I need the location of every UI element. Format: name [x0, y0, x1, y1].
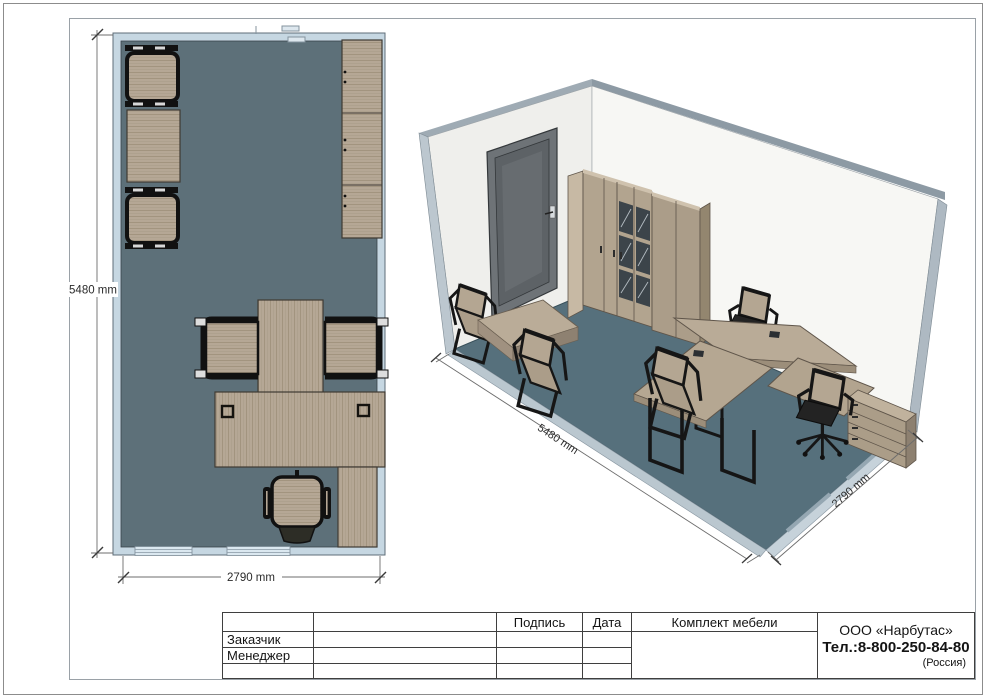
title-block-cell: [223, 613, 314, 632]
furniture-set-header: Комплект мебели: [632, 613, 818, 632]
plan-dim-height-label: 5480 mm: [69, 285, 117, 297]
title-block-cell: [223, 664, 314, 679]
customer-signature-cell: [497, 632, 583, 648]
plan-meeting-table: [258, 300, 323, 393]
manager-value-cell: [314, 648, 497, 664]
plan-armchair-2: [125, 187, 178, 249]
plan-dim-width: 2790 mm: [118, 556, 386, 584]
customer-date-cell: [583, 632, 632, 648]
title-block-cell: [583, 664, 632, 679]
sheet: 5480 mm 2790 mm: [0, 0, 988, 700]
company-country: (Россия): [822, 657, 970, 669]
plan-desk-return: [338, 467, 377, 547]
title-block-cell: [497, 664, 583, 679]
manager-date-cell: [583, 648, 632, 664]
plan-dim-height: 5480 mm: [68, 29, 118, 558]
manager-row-label: Менеджер: [223, 648, 314, 664]
plan-meeting-chair-left: [195, 318, 258, 378]
plan-meeting-chair-right: [325, 318, 388, 378]
signature-header: Подпись: [497, 613, 583, 632]
company-phone: Тел.:8-800-250-84-80: [822, 639, 970, 656]
customer-row-label: Заказчик: [223, 632, 314, 648]
floor-plan-view: 5480 mm 2790 mm: [68, 26, 388, 584]
drawing-canvas: 5480 mm 2790 mm: [0, 0, 988, 700]
iso-door: [487, 128, 557, 319]
customer-value-cell: [314, 632, 497, 648]
company-info: ООО «Нарбутас» Тел.:8-800-250-84-80 (Рос…: [818, 613, 975, 679]
plan-coffee-table: [127, 110, 180, 182]
plan-armchair-1: [125, 45, 178, 107]
plan-cabinet: [342, 40, 382, 238]
plan-desk: [215, 392, 385, 467]
furniture-set-cell: [632, 632, 818, 679]
date-header: Дата: [583, 613, 632, 632]
company-name: ООО «Нарбутас»: [822, 622, 970, 638]
room-3d-view: 5480 mm 2790 mm: [419, 79, 947, 565]
title-block: Подпись Дата Комплект мебели ООО «Нарбут…: [222, 612, 975, 679]
plan-dim-width-label: 2790 mm: [227, 572, 275, 584]
title-block-cell: [314, 613, 497, 632]
title-block-cell: [314, 664, 497, 679]
manager-signature-cell: [497, 648, 583, 664]
